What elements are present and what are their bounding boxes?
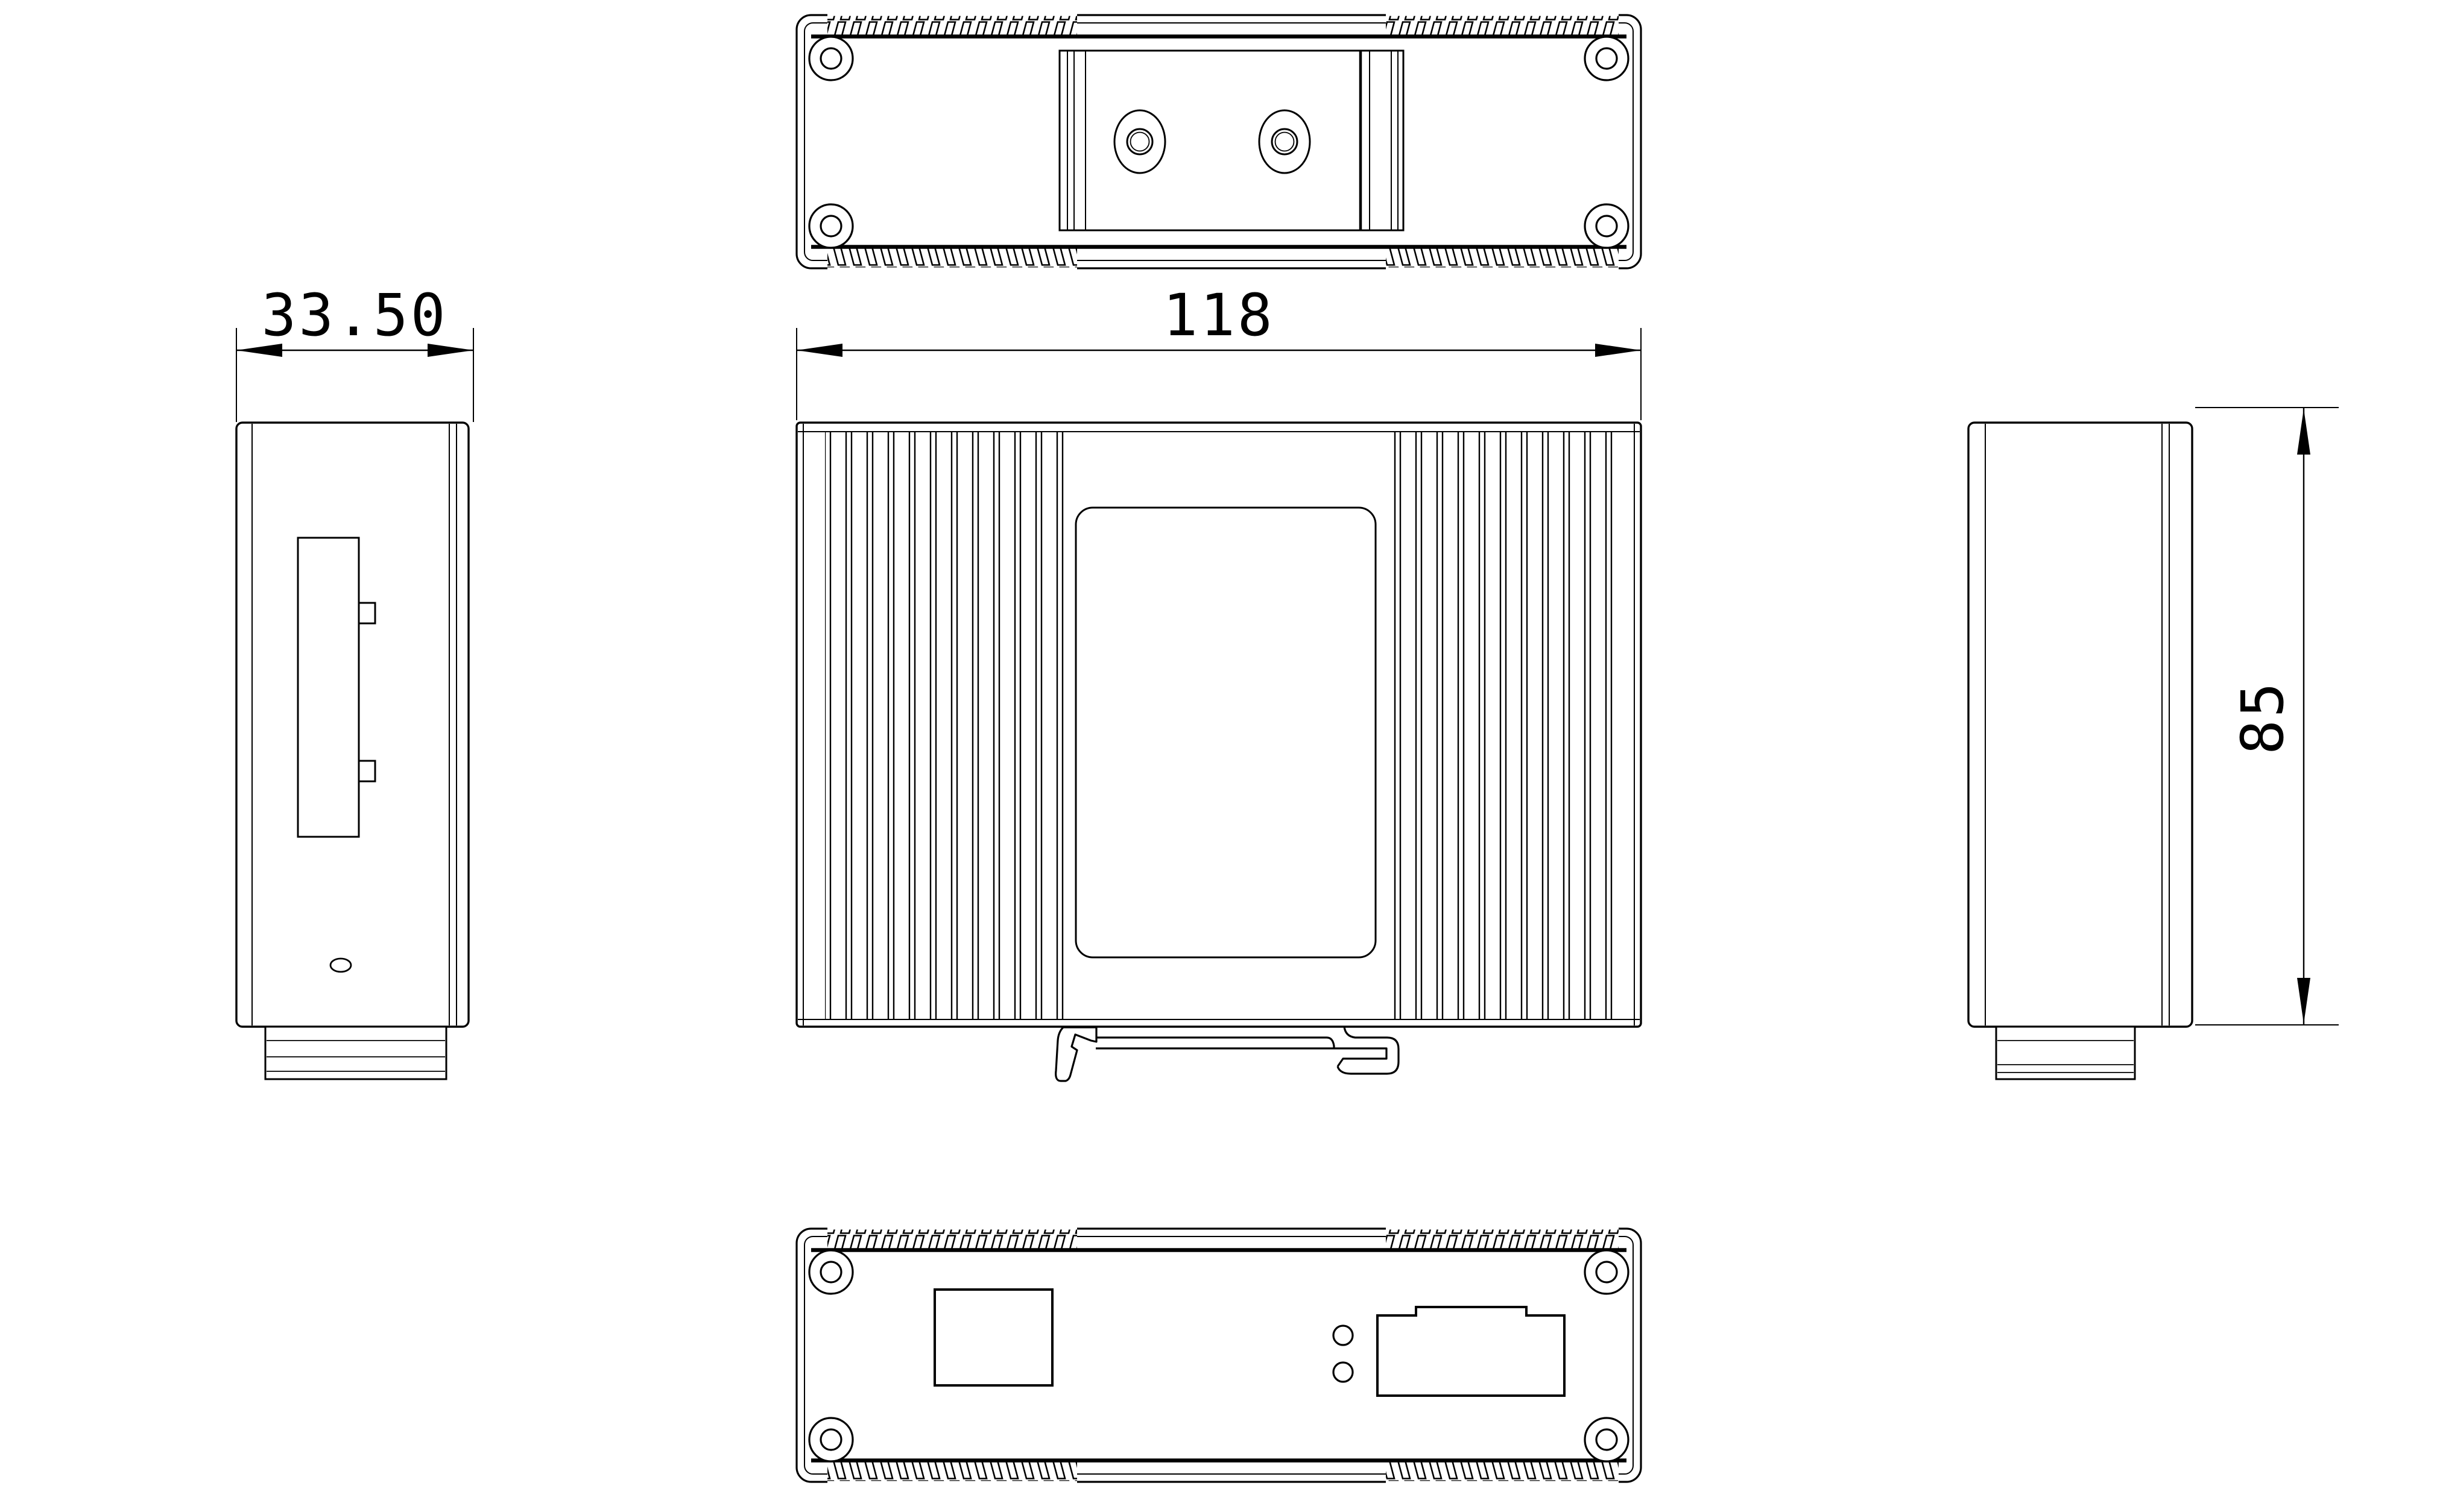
dimension-left-view-width: 33.50	[236, 282, 473, 422]
dim-arrow-up	[2297, 409, 2310, 455]
dimension-label-left-width: 33.50	[262, 282, 448, 349]
dim-arrow-down	[2297, 978, 2310, 1024]
din-rail-clip	[1056, 1027, 1399, 1081]
label-recess	[1076, 508, 1376, 957]
heatsink-fins-left	[825, 432, 1069, 1019]
counterbored-hole	[1114, 110, 1165, 173]
led-hole	[1333, 1326, 1353, 1345]
din-clip-latch	[1338, 1027, 1399, 1074]
bottom-view	[797, 1227, 1641, 1484]
led-hole	[1333, 1362, 1353, 1382]
power-port-cutout	[935, 1290, 1052, 1385]
drawing-sheet: 33.50 118	[0, 0, 2437, 1512]
ethernet-port-cutout	[1377, 1307, 1564, 1396]
technical-drawing-canvas: 33.50 118	[0, 0, 2437, 1512]
heatsink-fins-right	[1389, 432, 1614, 1019]
dimension-label-side-height: 85	[2229, 680, 2296, 755]
din-clip-release-lever	[1056, 1027, 1096, 1081]
dim-arrow-right	[1595, 344, 1641, 357]
dim-arrow-left	[797, 344, 842, 357]
counterbored-hole	[1259, 110, 1310, 173]
top-view	[797, 13, 1641, 270]
right-side-view	[1968, 423, 2192, 1079]
dimension-side-view-height: 85	[2195, 408, 2339, 1025]
front-view	[797, 423, 1641, 1081]
left-side-view	[236, 423, 469, 1079]
bottom-foot	[1996, 1027, 2135, 1079]
dimension-front-view-width: 118	[797, 282, 1641, 420]
din-clip-bar	[1096, 1038, 1386, 1066]
side-vent-hole	[330, 959, 351, 972]
bottom-foot	[265, 1027, 446, 1079]
dimension-label-front-width: 118	[1163, 282, 1274, 349]
mounting-plate-recess	[1060, 51, 1403, 230]
